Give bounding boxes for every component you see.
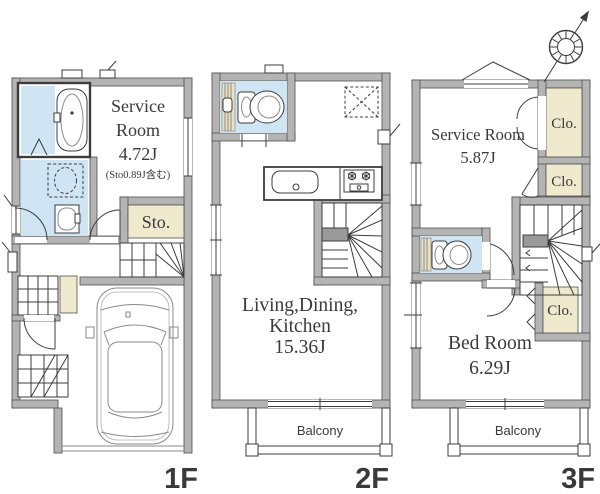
refrigerator-space-icon bbox=[345, 87, 378, 117]
entrance-door-arc bbox=[24, 318, 55, 349]
washroom bbox=[15, 160, 88, 243]
balcony-2f-label: Balcony bbox=[297, 423, 344, 438]
garage bbox=[62, 288, 184, 451]
ldk-line2: Kitchen bbox=[269, 316, 331, 337]
vent-3f-icon bbox=[582, 244, 600, 261]
floor-plan-page: Service Room 4.72J (Sto0.89J含む) Sto. bbox=[0, 0, 600, 494]
kitchen-counter bbox=[264, 167, 382, 200]
balcony-3f-label: Balcony bbox=[495, 423, 542, 438]
bifold-door-icon bbox=[527, 314, 535, 330]
floor-2f: Living,Dining, Kitchen 15.36J Balcony 2F bbox=[210, 65, 400, 494]
stairs-3f bbox=[520, 205, 582, 295]
car-icon bbox=[86, 288, 178, 444]
floor-plan-svg: Service Room 4.72J (Sto0.89J含む) Sto. bbox=[0, 0, 600, 494]
storage-1f: Sto. bbox=[128, 205, 184, 238]
car-mirror-left bbox=[86, 327, 94, 338]
stairs-1f bbox=[120, 243, 184, 277]
bay-window-icon bbox=[462, 62, 530, 88]
washbasin-icon bbox=[55, 205, 80, 233]
car-antenna bbox=[126, 312, 130, 317]
closet-top-3f: Clo. bbox=[517, 88, 582, 157]
service-room-3f-name: Service Room bbox=[431, 125, 525, 144]
bedroom-door-3f bbox=[487, 280, 515, 316]
bath-vent-window bbox=[62, 70, 82, 78]
roof-vent-icon bbox=[100, 61, 116, 78]
service-room-3f-size: 5.87J bbox=[460, 148, 496, 167]
toilet-window-2f bbox=[265, 65, 283, 73]
toilet-door-gap-3f bbox=[482, 242, 490, 270]
washroom-door-gap bbox=[15, 237, 47, 243]
hall-door-gap bbox=[90, 237, 118, 243]
service-room-1f-note: (Sto0.89J含む) bbox=[106, 168, 171, 181]
toilet-room-3f bbox=[420, 236, 490, 273]
storage-label: Sto. bbox=[142, 212, 171, 232]
floor-3f: Service Room 5.87J Clo. Clo. bbox=[404, 11, 600, 494]
closet-lower-label: Clo. bbox=[547, 303, 572, 319]
toilet-door-gap-2f bbox=[240, 134, 268, 140]
bedroom-name: Bed Room bbox=[448, 333, 532, 354]
closet-top-label: Clo. bbox=[551, 116, 576, 132]
entrance-steps-tiles bbox=[18, 355, 68, 397]
hand-wash-shelf-icon bbox=[222, 83, 235, 131]
genkan-tiles bbox=[18, 276, 58, 315]
closet-mid-3f: Clo. bbox=[522, 164, 582, 197]
balcony-3f: Balcony bbox=[448, 408, 590, 456]
ldk-size: 15.36J bbox=[274, 337, 326, 358]
floor-label-3f: 3F bbox=[561, 463, 595, 494]
stairs-rail bbox=[523, 235, 548, 247]
service-room-1f-label: Service Room 4.72J (Sto0.89J含む) bbox=[106, 96, 171, 181]
toilet-icon-3f bbox=[432, 241, 471, 269]
service-room-1f-size: 4.72J bbox=[119, 144, 158, 164]
toilet-icon-2f bbox=[238, 91, 284, 123]
service-room-1f-line2: Room bbox=[116, 120, 160, 140]
stairs-arrow bbox=[526, 250, 530, 256]
floor-label-1f: 1F bbox=[164, 463, 198, 494]
ldk-line1: Living,Dining, bbox=[242, 295, 358, 316]
floor-1f: Service Room 4.72J (Sto0.89J含む) Sto. bbox=[2, 61, 198, 494]
floor-label-2f: 2F bbox=[355, 463, 389, 494]
service-room-3f-label: Service Room 5.87J bbox=[431, 125, 525, 167]
shoe-cabinet bbox=[60, 276, 77, 313]
window-1f-right bbox=[184, 118, 192, 176]
entrance bbox=[18, 276, 77, 397]
bedroom-size: 6.29J bbox=[469, 358, 511, 379]
closet-mid-label: Clo. bbox=[551, 174, 576, 190]
hand-wash-shelf-icon bbox=[421, 238, 431, 271]
bathroom bbox=[18, 83, 90, 157]
bathtub-icon bbox=[54, 89, 87, 151]
ldk-label: Living,Dining, Kitchen 15.36J bbox=[242, 295, 358, 358]
window-3f-left-lower bbox=[404, 283, 422, 348]
service-room-1f-line1: Service bbox=[111, 96, 165, 116]
balcony-2f: Balcony bbox=[246, 408, 392, 456]
stairs-rail bbox=[322, 228, 348, 241]
compass-north-icon bbox=[544, 11, 589, 83]
stairs-2f bbox=[322, 203, 382, 277]
entrance-door-gap bbox=[24, 315, 54, 321]
bedroom-label: Bed Room 6.29J bbox=[448, 333, 532, 379]
bath-floor bbox=[21, 86, 55, 154]
bifold-door-icon bbox=[527, 288, 535, 304]
car-mirror-right bbox=[170, 327, 178, 338]
